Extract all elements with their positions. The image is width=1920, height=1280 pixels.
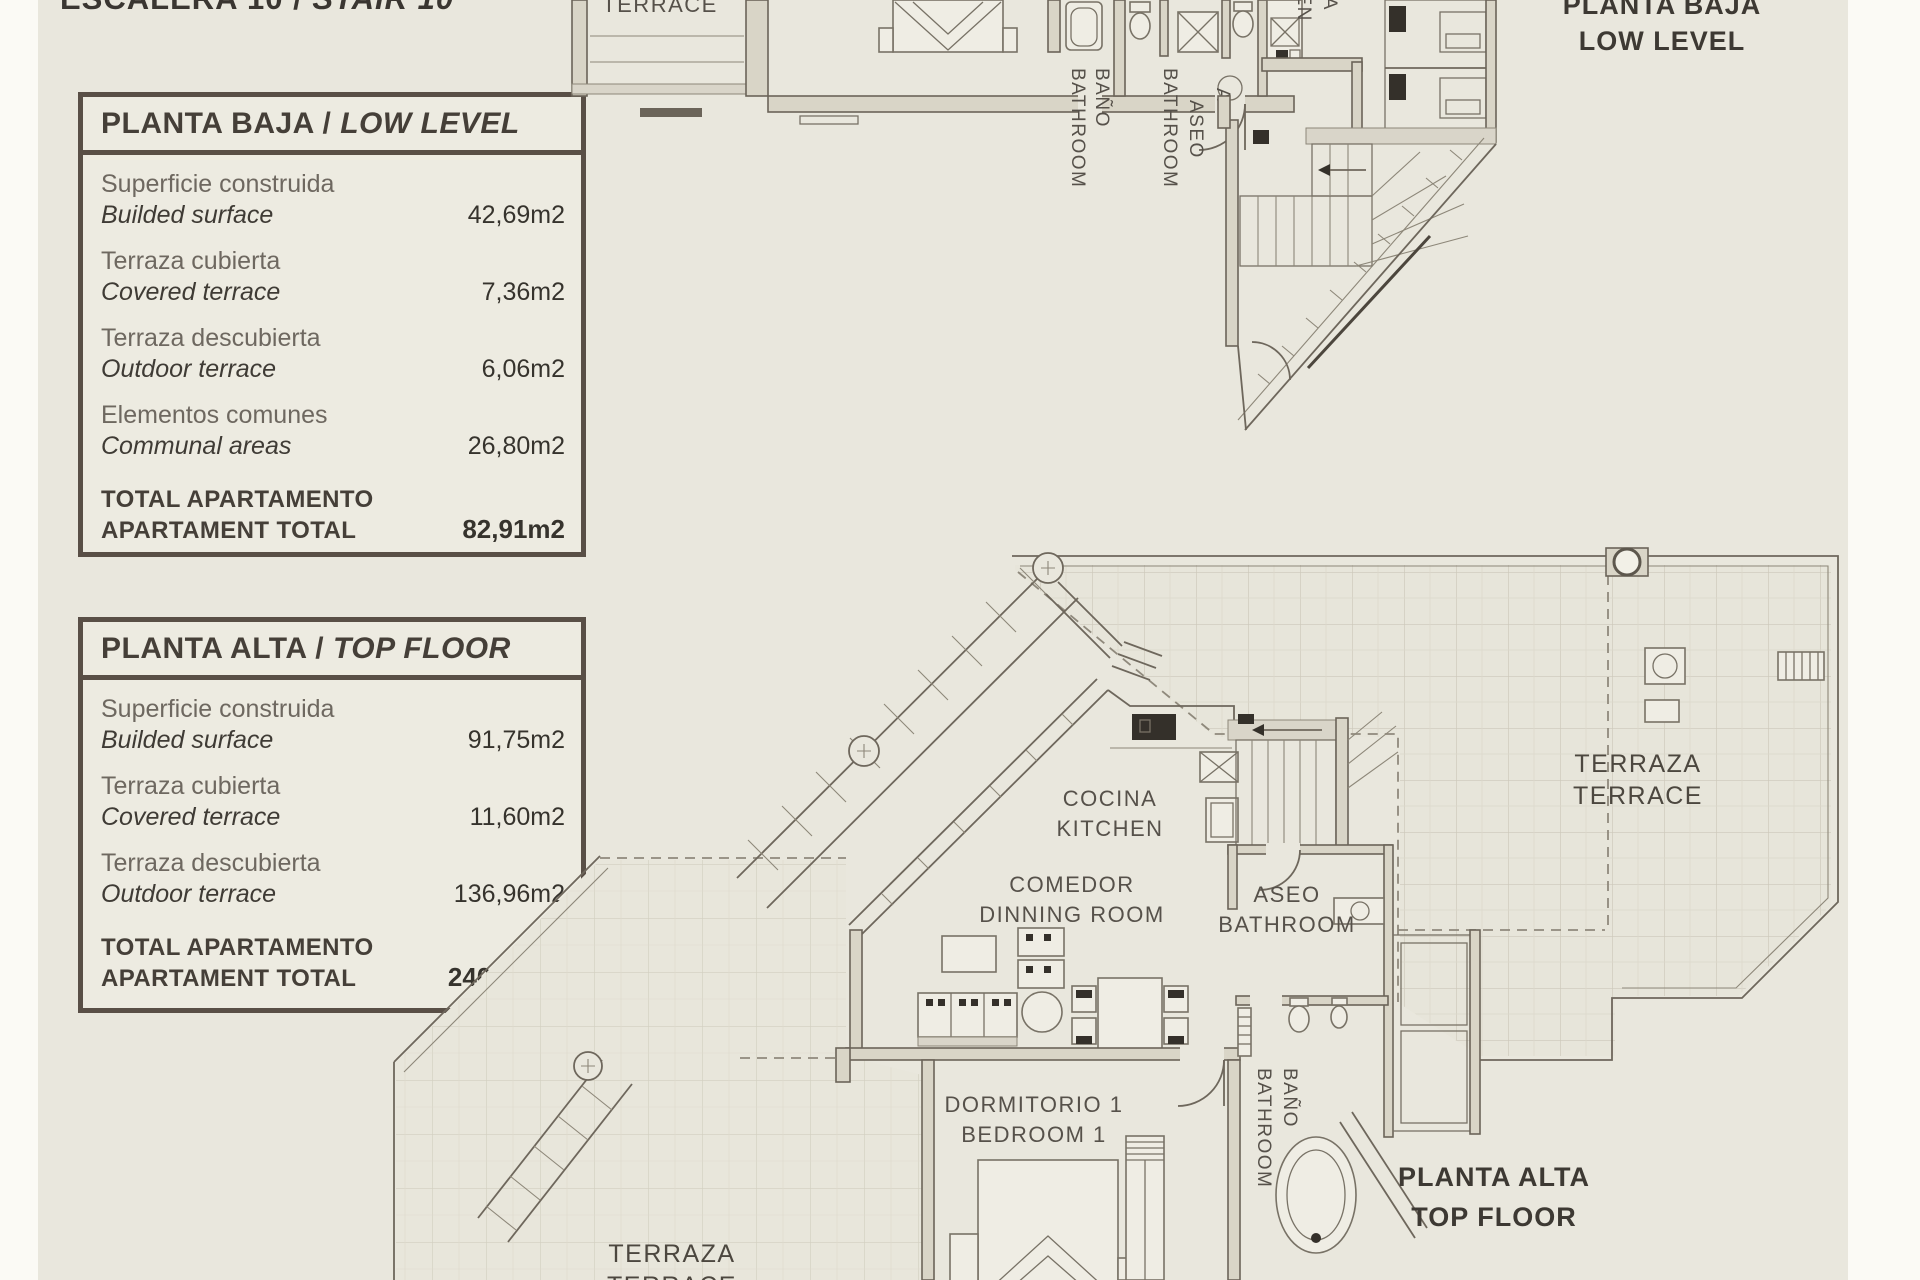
- partition: [1114, 0, 1125, 96]
- wardrobe-icon: [1126, 1136, 1164, 1280]
- toilet-icon: [1289, 998, 1309, 1032]
- top-cocina-label-1: COCINA: [1063, 786, 1158, 811]
- bed-icon: [950, 1160, 1154, 1280]
- bath-block: ASEO BATHROOM BAÑO BATHROOM: [1218, 843, 1427, 1253]
- floor-plan-drawing: TERRACE: [0, 0, 1920, 1280]
- partition: [1048, 0, 1060, 52]
- towel-radiator-icon: [1238, 1008, 1251, 1056]
- low-floor-caption-2: LOW LEVEL: [1579, 26, 1746, 56]
- dormitorio-label-1: DORMITORIO 1: [945, 1092, 1124, 1117]
- wc-icon: [1233, 2, 1253, 37]
- bottom-terrace-label-2: TERRACE: [607, 1272, 737, 1280]
- top-aseo-label-1: ASEO: [1253, 882, 1320, 907]
- partition: [1160, 0, 1168, 56]
- round-table-icon: [1022, 992, 1062, 1032]
- bed-icon: [879, 0, 1017, 52]
- staircase: [1218, 96, 1496, 430]
- low-terrace-label: TERRACE: [602, 0, 718, 17]
- low-bano-label-2: BATHROOM: [1067, 68, 1088, 188]
- elevator-core: [1385, 0, 1496, 142]
- top-aseo-label-2: BATHROOM: [1218, 912, 1355, 937]
- living-furniture: COMEDOR DINNING ROOM: [918, 872, 1188, 1052]
- top-bano-label-1: BAÑO: [1279, 1068, 1301, 1128]
- low-floor-caption-1: PLANTA BAJA: [1563, 0, 1762, 20]
- top-cocina-label-2: KITCHEN: [1056, 816, 1163, 841]
- low-level-plan: TERRACE: [572, 0, 1761, 430]
- right-terrace-label-2: TERRACE: [1573, 782, 1703, 810]
- right-terrace-label-1: TERRAZA: [1574, 750, 1701, 778]
- dormitorio-label-2: BEDROOM 1: [961, 1122, 1107, 1147]
- top-floor-caption-2: TOP FLOOR: [1411, 1202, 1577, 1232]
- low-aseo-label-1: ASEO: [1185, 100, 1206, 159]
- low-cocina-label-2: KITCHEN: [1293, 0, 1314, 22]
- bathtub-icon: [1276, 1137, 1356, 1253]
- bottom-terrace-label-1: TERRAZA: [608, 1240, 735, 1268]
- low-cocina-label-1: COCINA: [1319, 0, 1340, 11]
- bathtub-icon: [1066, 2, 1102, 50]
- bidet-icon: [1331, 998, 1347, 1028]
- shower-icon: [1178, 12, 1218, 52]
- plan-sheet: ESCALERA 10 / STAIR 10 PLANTA BAJA / LOW…: [0, 0, 1920, 1280]
- dining-table-icon: [1072, 978, 1188, 1052]
- partition: [1258, 0, 1267, 96]
- top-bano-label-2: BATHROOM: [1253, 1068, 1274, 1188]
- sofa-icon: [918, 993, 1017, 1046]
- partition: [1222, 0, 1230, 58]
- armchairs-icon: [1018, 928, 1064, 988]
- comedor-label-1: COMEDOR: [1009, 872, 1134, 897]
- low-terrace: TERRACE: [572, 0, 768, 117]
- low-bano-label-1: BAÑO: [1091, 68, 1113, 128]
- grill-icon: [1778, 652, 1824, 680]
- top-floor-caption-1: PLANTA ALTA: [1398, 1162, 1590, 1192]
- comedor-label-2: DINNING ROOM: [979, 902, 1164, 927]
- low-aseo-label-2: BATHROOM: [1159, 68, 1180, 188]
- toilet-icon: [1130, 2, 1150, 39]
- bedroom: DORMITORIO 1 BEDROOM 1: [922, 1060, 1240, 1280]
- top-floor-plan: TERRAZA TERRACE TERRAZA TERRACE: [394, 548, 1838, 1280]
